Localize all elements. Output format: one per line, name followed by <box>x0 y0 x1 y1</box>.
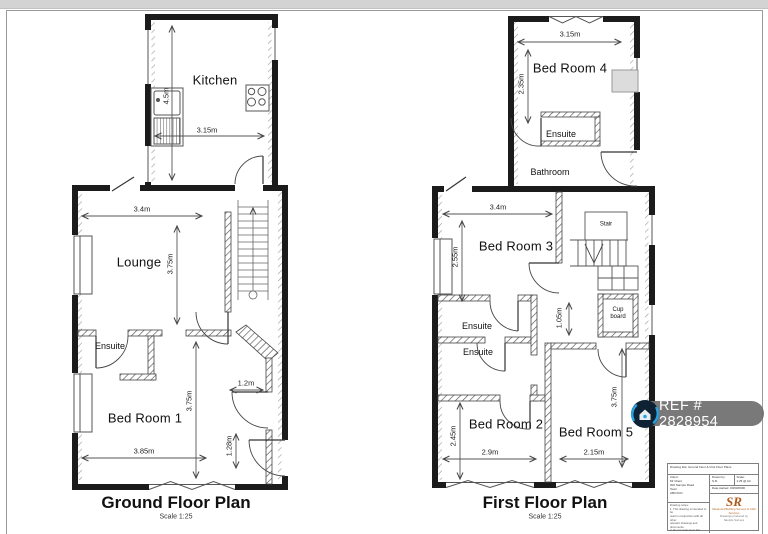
room-label-bedroom5: Bed Room 5 <box>559 425 633 440</box>
client-line: AB0 0CD <box>670 492 707 496</box>
room-label-ensuite-ground: Ensuite <box>95 341 125 351</box>
dim-landing: 1.05m <box>555 308 564 329</box>
title-block-left: Client: Mr Client 000 Sample Road Town A… <box>668 475 710 533</box>
date-cell: Date started: 00/00/0000 <box>710 486 758 494</box>
scale-value: 1:25 @ A4 <box>737 480 757 484</box>
scale-cell: Scale: 1:25 @ A4 <box>734 475 759 485</box>
ground-floor-title: Ground Floor Plan <box>101 493 250 513</box>
dim-hall-width: 1.2m <box>238 379 255 388</box>
ref-badge: REF # 2828954 <box>630 399 766 429</box>
room-label-bathroom: Bathroom <box>530 167 569 177</box>
dim-lounge-width: 3.4m <box>134 205 151 214</box>
room-label-kitchen: Kitchen <box>193 73 238 88</box>
logo-subline: Sample Surveys <box>710 519 758 523</box>
dim-bedroom3-height: 2.55m <box>451 247 460 268</box>
dim-bedroom1-height: 3.75m <box>185 391 194 412</box>
dim-kitchen-width: 3.15m <box>197 126 218 135</box>
drawn-by-cell: Drawn by: S.R. <box>710 475 734 485</box>
first-furniture <box>612 70 638 92</box>
dim-hall-depth: 1.28m <box>225 436 234 457</box>
first-doors <box>444 118 641 429</box>
ref-badge-text: REF # 2828954 <box>659 398 764 430</box>
room-label-ensuite-mid: Ensuite <box>462 321 492 331</box>
first-dimension-lines <box>443 42 628 479</box>
title-block-right: Drawn by: S.R. Scale: 1:25 @ A4 Date sta… <box>710 475 758 533</box>
room-label-bedroom1: Bed Room 1 <box>108 411 182 426</box>
room-label-bedroom2: Bed Room 2 <box>469 417 543 432</box>
dim-bedroom2-height: 2.45m <box>449 426 458 447</box>
room-label-stair: Stair <box>600 221 612 228</box>
ground-doors <box>96 156 289 476</box>
title-block-project-line: Drawing title: Ground Floor & First Floo… <box>668 464 758 475</box>
dim-bedroom5-width: 2.15m <box>584 448 605 457</box>
title-block-notes: Drawing notes: 1. This drawing is intend… <box>668 503 709 533</box>
room-label-ensuite-lower: Ensuite <box>463 347 493 357</box>
date-label: Date started: <box>712 486 729 490</box>
dim-bedroom1-width: 3.85m <box>134 447 155 456</box>
dim-bedroom5-height: 3.75m <box>610 387 619 408</box>
surveyor-logo: SR Measured Building Surveys & CAD Servi… <box>710 494 758 533</box>
cupboard-line1: Cup <box>610 307 625 314</box>
ground-floor-scale: Scale 1:25 <box>159 514 192 521</box>
house-circle-icon <box>630 399 660 429</box>
date-value: 00/00/0000 <box>730 486 745 490</box>
ground-stairs <box>238 200 268 300</box>
room-label-bedroom4: Bed Room 4 <box>533 61 607 76</box>
dim-bedroom2-width: 2.9m <box>482 448 499 457</box>
room-label-bedroom3: Bed Room 3 <box>479 239 553 254</box>
drawn-by-value: S.R. <box>712 480 732 484</box>
title-block-client: Client: Mr Client 000 Sample Road Town A… <box>668 475 709 503</box>
dim-bedroom4-height: 2.35m <box>517 74 526 95</box>
first-floor-title: First Floor Plan <box>483 493 608 513</box>
dim-kitchen-height: 4.5m <box>162 88 171 105</box>
notes-line: 2. Do not scale from this drawing. <box>670 529 707 533</box>
room-label-lounge: Lounge <box>117 255 162 270</box>
cupboard-line2: board <box>610 314 625 321</box>
dim-lounge-height: 3.75m <box>166 254 175 275</box>
first-floor-scale: Scale 1:25 <box>528 514 561 521</box>
title-block: Drawing title: Ground Floor & First Floo… <box>667 463 759 531</box>
floorplan-sheet: Kitchen 4.5m 3.15m Lounge 3.4m 3.75m Ens… <box>0 0 768 534</box>
dim-bedroom3-width: 3.4m <box>490 203 507 212</box>
floor-plan-drawing <box>0 0 768 534</box>
room-label-cupboard: Cup board <box>610 307 625 321</box>
room-label-ensuite-top: Ensuite <box>546 129 576 139</box>
dim-bedroom4-width: 3.15m <box>560 30 581 39</box>
